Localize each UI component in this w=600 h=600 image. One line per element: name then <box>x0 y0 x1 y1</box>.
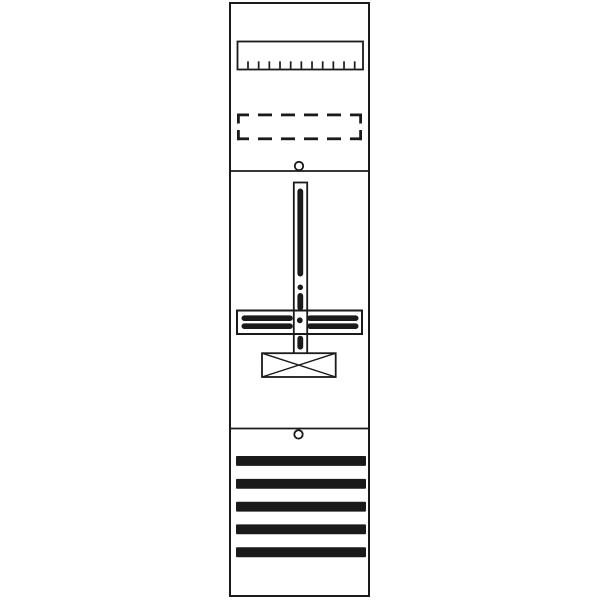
cover-bar-2 <box>236 479 366 489</box>
bottom-screw-hole <box>294 430 302 438</box>
crossbar-bar-left-bottom <box>242 323 293 329</box>
cover-bar-4 <box>236 524 366 534</box>
rail-slot-upper <box>297 189 303 277</box>
crossbar-center-dot <box>297 317 303 323</box>
crossbar-bar-left-top <box>242 315 293 321</box>
meter-panel-layout <box>0 0 600 600</box>
crossbar-bar-right-top <box>307 315 358 321</box>
cover-bar-5 <box>236 547 366 557</box>
top-screw-hole <box>295 162 303 170</box>
rail-slot-dot <box>298 285 304 291</box>
rail-slot-lower <box>297 336 303 350</box>
rail-slot-middle <box>297 293 303 311</box>
panel-diagram <box>0 0 600 600</box>
cover-bar-1 <box>236 456 366 466</box>
cover-bar-3 <box>236 502 366 512</box>
crossbar-bar-right-bottom <box>307 323 358 329</box>
